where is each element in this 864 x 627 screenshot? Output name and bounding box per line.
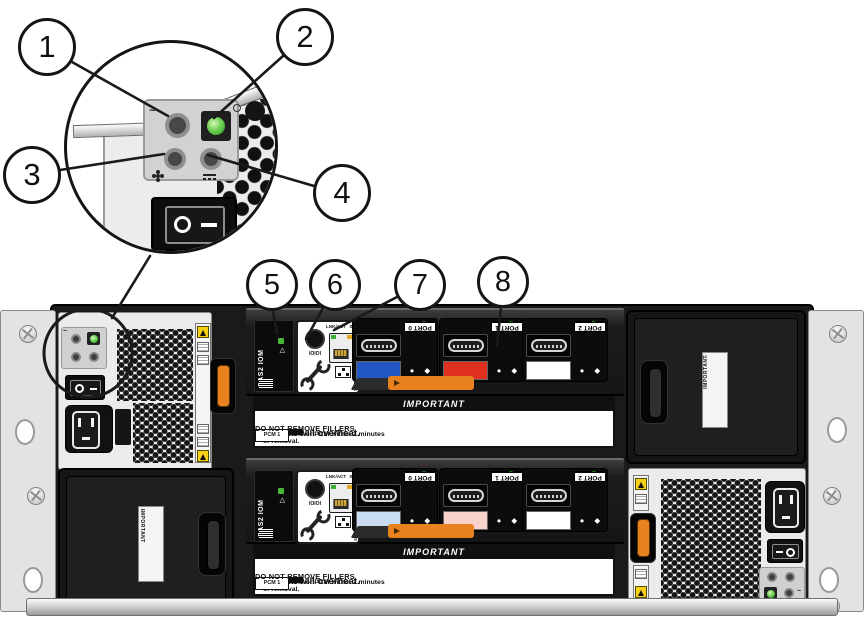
psu-latch: [210, 358, 236, 414]
wrench-icon: [305, 364, 323, 383]
dc-fail-led: [89, 352, 99, 362]
rack-ear-left: [0, 310, 56, 612]
dc-fail-led: [785, 572, 795, 582]
sas-connector: [356, 484, 401, 507]
sas-port-group-0: PORT 0 1 2 3 4 1 2 3 4 PORT 0 ● ◆: [352, 468, 438, 532]
power-switch-rocker: [70, 380, 101, 396]
ac-power-icon: ~: [797, 588, 801, 595]
power-switch-rocker: [165, 206, 225, 244]
sas-port-group-2: PORT 2 1 2 3 4 1 2 3 4 PORT 2 ● ◆: [522, 468, 608, 532]
filler-label-text: IMPORTANT: [703, 353, 709, 391]
serial-port-label: IOIOI: [303, 351, 327, 357]
power-switch: [65, 375, 105, 400]
service-module: IOIOI LNK/ACT Spd SERVICE ONLY: [296, 470, 360, 544]
sas-port-group-0: PORT 0 1 2 3 4 1 2 3 4 PORT 0 ● ◆: [352, 318, 438, 382]
psu-warning-labels: [195, 323, 211, 463]
iom-label: SAS2 IOM: [258, 475, 265, 537]
power-switch-zoom: [151, 197, 237, 251]
filler-latch: [640, 360, 668, 424]
switch-on-icon: [174, 216, 191, 233]
port-color-tab: [526, 511, 571, 530]
mounting-hole: [819, 567, 839, 593]
ac-led: [71, 334, 81, 344]
warning-triangle-icon: [635, 478, 647, 490]
iom-fault-icon: △: [280, 347, 285, 354]
ac-power-icon: ~: [63, 328, 67, 335]
callout-2: 2: [276, 8, 334, 66]
cable-clamp: [115, 409, 131, 445]
lnk-act-label: LNK/ACT: [326, 474, 346, 479]
power-ok-led-housing: [201, 111, 231, 141]
power-ok-led: [90, 335, 98, 343]
dc-icon: [203, 174, 216, 180]
callout-1: 1: [18, 18, 76, 76]
serial-port: [305, 479, 325, 499]
psu-top-left: ~: [58, 312, 212, 470]
warning-triangle-icon: [197, 450, 209, 462]
pcm-filler-top-right: IMPORTANT: [626, 310, 806, 464]
ac-power-icon: ~: [149, 105, 155, 117]
screw-icon: [15, 321, 40, 346]
callout-8: 8: [477, 256, 529, 308]
rack-ear-right: [808, 310, 864, 612]
mounting-hole: [827, 417, 847, 443]
power-switch-rocker: [772, 544, 799, 559]
serial-port: [305, 329, 325, 349]
do-not-remove-note: DO NOT REMOVE FILLERS: [255, 572, 355, 581]
fan-fail-led: [767, 572, 777, 582]
psu-bottom-right: ~: [628, 468, 806, 606]
ac-inlet: [765, 481, 805, 533]
power-ok-led: [207, 117, 225, 135]
callout-5: 5: [246, 259, 298, 311]
important-sticker-bottom: IMPORTANT System will overheat. Replace …: [253, 544, 615, 596]
network-icon: [335, 516, 351, 528]
barcode-label: [259, 529, 273, 538]
ac-led: [165, 113, 190, 138]
fan-fail-led: [164, 148, 186, 170]
port-status-symbols: ● ◆: [491, 363, 523, 379]
filler-latch: [198, 512, 226, 576]
psu-indicator-panel: ~: [61, 327, 107, 369]
callout-6: 6: [309, 259, 361, 311]
psu-vent: [117, 329, 193, 401]
ac-inlet: [65, 405, 113, 453]
iom-release-lever: [388, 524, 474, 538]
switch-on-icon: [786, 548, 795, 557]
port-label-inverted: PORT 2: [574, 322, 606, 332]
sas-port-group-2: PORT 2 1 2 3 4 1 2 3 4 PORT 2 ● ◆: [522, 318, 608, 382]
fan-icon: [153, 171, 163, 181]
switch-off-icon: [90, 388, 97, 390]
sas-connector: [356, 334, 401, 357]
ac-led: [784, 588, 794, 598]
pcm-filler-bottom-left: IMPORTANT: [58, 468, 234, 612]
iom-id-strip: SAS2 IOM △: [254, 320, 294, 392]
filler-label-text: IMPORTANT: [139, 507, 145, 545]
port-label-inverted: PORT 0: [404, 472, 436, 482]
port-label-inverted: PORT 0: [404, 322, 436, 332]
screw-icon: [23, 483, 48, 508]
mounting-hole: [23, 567, 43, 593]
eth-link-led: [331, 335, 336, 339]
screw-icon: [819, 483, 844, 508]
switch-off-icon: [776, 551, 783, 553]
callout-3: 3: [3, 146, 61, 204]
port-status-symbols: ● ◆: [574, 513, 606, 529]
psu-indicator-panel-zoom: ~: [143, 99, 239, 181]
do-not-remove-note: DO NOT REMOVE FILLERS: [255, 424, 355, 433]
warning-triangle-icon: [635, 586, 647, 598]
power-ok-led: [767, 590, 775, 598]
port-label-inverted: PORT 2: [574, 472, 606, 482]
callout-7: 7: [394, 259, 446, 311]
psu-latch-handle: [217, 365, 230, 407]
serial-port-label: IOIOI: [303, 501, 327, 507]
sas-connector: [526, 334, 571, 357]
fan-fail-led: [71, 352, 81, 362]
dc-fail-led: [200, 148, 222, 170]
barcode-label: [259, 379, 273, 388]
iom-release-lever: [388, 376, 474, 390]
iom-ok-led: [278, 488, 284, 494]
sas-connector: [526, 484, 571, 507]
ac-inlet-cutout: [773, 488, 799, 528]
filler-important-label: IMPORTANT: [702, 352, 728, 428]
ethernet-port: [329, 333, 354, 363]
callout-4: 4: [313, 164, 371, 222]
psu-vent: [133, 403, 193, 463]
iom-id-strip: SAS2 IOM △: [254, 470, 294, 542]
psu-latch-handle: [637, 519, 650, 557]
iom-fault-icon: △: [280, 497, 285, 504]
eth-link-led: [331, 485, 336, 489]
iom-ok-led: [278, 338, 284, 344]
network-icon: [335, 366, 351, 378]
port-label-inverted: PORT 1: [491, 322, 523, 332]
important-title: IMPORTANT: [255, 546, 613, 559]
ethernet-port: [329, 483, 354, 513]
power-switch: [767, 539, 803, 563]
switch-off-icon: [201, 223, 217, 227]
iom-label: SAS2 IOM: [258, 325, 265, 387]
port-status-symbols: ● ◆: [491, 513, 523, 529]
iom-bottom: SAS2 IOM △ IOIOI LNK/ACT Spd SERVICE ONL…: [246, 458, 624, 544]
magnified-psu-indicator-view: ~: [64, 40, 278, 254]
sas-port-group-1: PORT 1 1 2 3 4 1 2 3 4 PORT 1 ● ◆: [439, 468, 525, 532]
ac-inlet-cutout: [72, 411, 100, 449]
screw-hole: [245, 101, 265, 121]
sas-port-group-1: PORT 1 1 2 3 4 1 2 3 4 PORT 1 ● ◆: [439, 318, 525, 382]
chassis-bottom-rail: [26, 598, 838, 616]
port-label-inverted: PORT 1: [491, 472, 523, 482]
switch-on-icon: [75, 384, 84, 393]
sas-connector: [443, 334, 488, 357]
warning-triangle-icon: [197, 326, 209, 338]
important-sticker-top: IMPORTANT System will overheat. Replace …: [253, 396, 615, 448]
power-symbol-icon: [233, 104, 241, 112]
psu-warning-labels: [633, 475, 649, 511]
mounting-hole: [15, 419, 35, 445]
port-color-tab: [526, 361, 571, 380]
lnk-act-label: LNK/ACT: [326, 324, 346, 329]
iom-top: SAS2 IOM △ IOIOI LNK/ACT Spd SERVICE ONL…: [246, 308, 624, 396]
port-status-symbols: ● ◆: [574, 363, 606, 379]
rear-panel-diagram: ~: [0, 0, 864, 627]
psu-vent: [661, 479, 761, 601]
service-module: IOIOI LNK/ACT Spd SERVICE ONLY: [296, 320, 360, 394]
sas-connector: [443, 484, 488, 507]
screw-icon: [825, 321, 850, 346]
power-ok-led-housing: [87, 332, 100, 345]
wrench-icon: [305, 514, 323, 533]
psu-latch: [630, 513, 656, 563]
important-title: IMPORTANT: [255, 398, 613, 411]
filler-important-label: IMPORTANT: [138, 506, 164, 582]
